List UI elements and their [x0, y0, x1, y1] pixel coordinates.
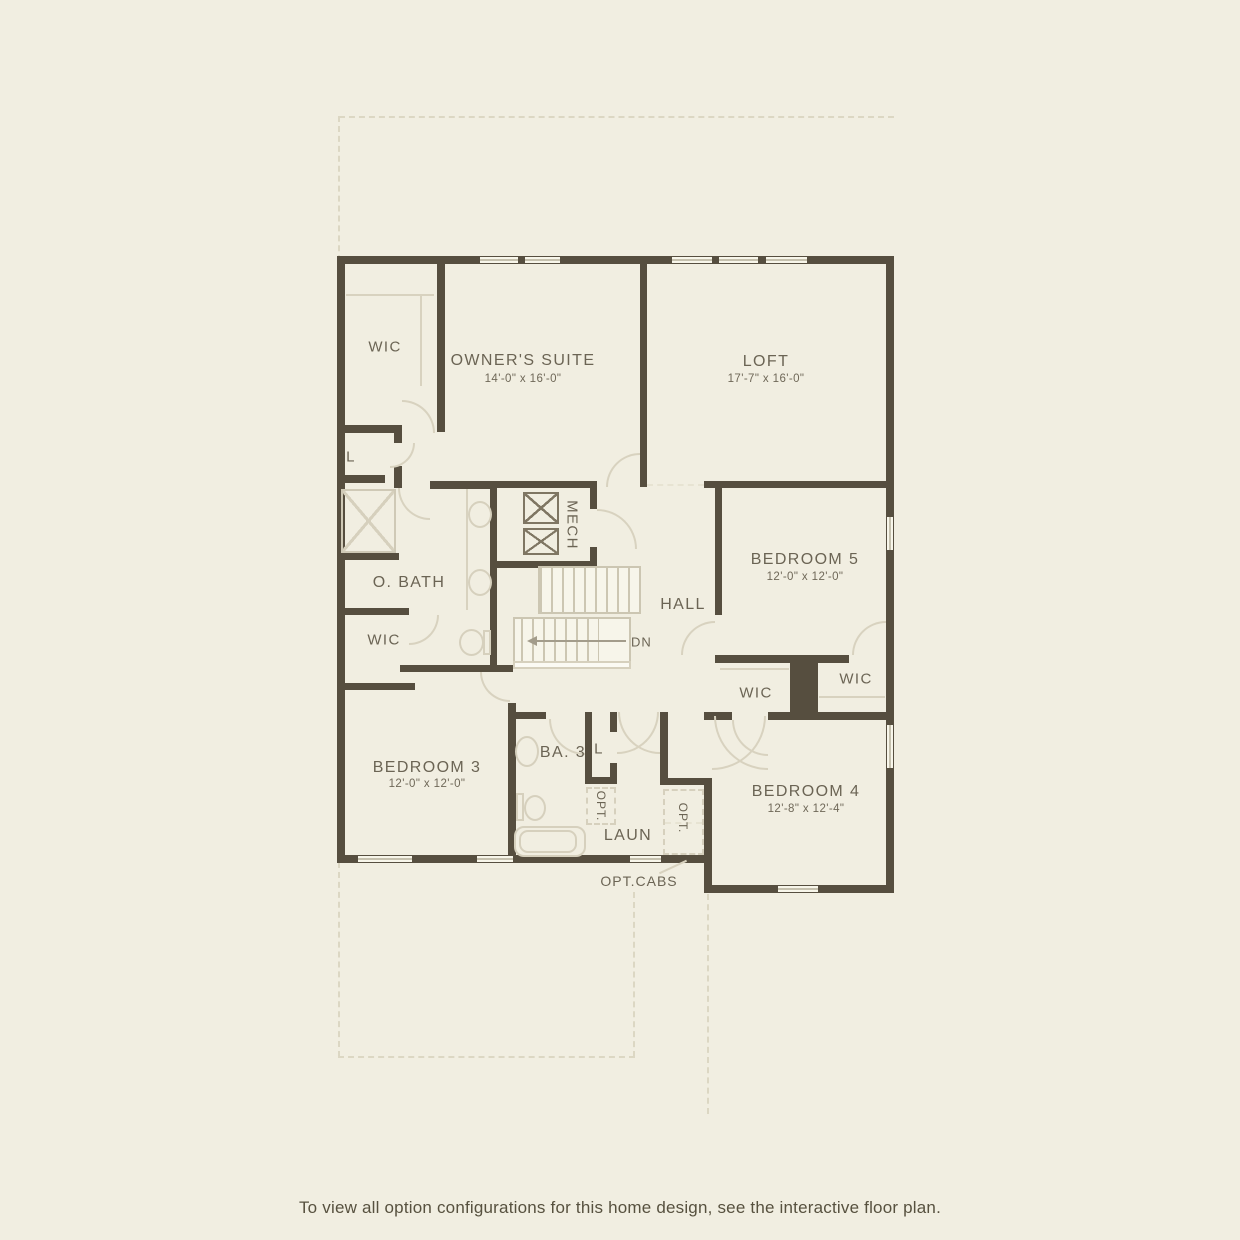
wall	[610, 712, 617, 732]
room-label-hall: HALL	[660, 596, 706, 614]
window	[887, 725, 893, 768]
wall	[394, 466, 402, 488]
bathtub-inner	[519, 830, 577, 853]
wall	[490, 481, 597, 488]
shower	[341, 489, 396, 553]
room-label-mech: MECH	[564, 500, 581, 550]
door-arc	[606, 453, 640, 487]
wall	[437, 256, 445, 432]
toilet-tank	[516, 793, 524, 821]
wall	[337, 553, 399, 560]
door-arc	[409, 615, 439, 645]
stair-landing-edge	[513, 661, 631, 669]
room-dims-bedroom4: 12'-8" x 12'-4"	[768, 803, 845, 815]
opt-cabs-opening	[630, 856, 661, 862]
window	[719, 257, 758, 263]
mech-unit	[523, 528, 559, 555]
room-label-loft: LOFT	[743, 353, 790, 371]
option-outline-bottom	[338, 1056, 635, 1058]
wall	[660, 778, 712, 785]
wall	[590, 481, 597, 509]
room-dims-loft: 17'-7" x 16'-0"	[728, 373, 805, 385]
optional-cabinets-label: OPT.CABS	[600, 873, 677, 889]
room-dims-owners-suite: 14'-0" x 16'-0"	[485, 373, 562, 385]
room-label-bedroom4: BEDROOM 4	[752, 783, 861, 801]
wall	[337, 256, 894, 264]
stair-treads	[540, 568, 639, 612]
door-arc	[480, 672, 510, 702]
wall	[660, 712, 668, 785]
window	[887, 517, 893, 550]
room-label-linen-bath: L	[594, 741, 604, 758]
floor-plan-page: WIC OWNER'S SUITE 14'-0" x 16'-0" LOFT 1…	[0, 0, 1240, 1240]
stair-down-label: DN	[631, 635, 652, 650]
closet-shelf-line	[819, 696, 885, 698]
room-label-wic-bed5-right: WIC	[839, 671, 872, 688]
room-label-wic-bed5-left: WIC	[739, 685, 772, 702]
room-dims-bedroom5: 12'-0" x 12'-0"	[767, 571, 844, 583]
vanity-counter	[466, 489, 468, 610]
room-label-owners-suite: OWNER'S SUITE	[451, 352, 596, 370]
cased-opening	[647, 484, 704, 486]
wall	[790, 655, 818, 715]
toilet	[524, 795, 546, 821]
room-label-bedroom5: BEDROOM 5	[751, 551, 860, 569]
sink	[515, 736, 539, 767]
door-arc	[402, 400, 435, 433]
option-outline-extension	[707, 894, 709, 1114]
window	[672, 257, 712, 263]
option-outline-right	[633, 892, 635, 1057]
wall	[508, 712, 546, 719]
window	[358, 856, 412, 862]
stair-direction-line	[536, 640, 626, 642]
wall	[704, 481, 894, 488]
wall	[768, 712, 894, 720]
room-label-owners-bath: O. BATH	[373, 574, 446, 592]
door-arc	[390, 443, 415, 468]
wall	[337, 683, 415, 690]
wall	[886, 256, 894, 893]
wall	[337, 475, 385, 483]
mech-unit	[523, 492, 559, 524]
wall	[394, 425, 402, 443]
toilet-tank	[483, 630, 491, 655]
room-label-linen-upper: L	[346, 449, 356, 466]
closet-shelf-line	[720, 668, 789, 670]
closet-shelf-line	[420, 294, 422, 386]
option-outline-top	[339, 116, 894, 118]
room-label-bath3: BA. 3	[540, 744, 586, 762]
optional-label-left: OPT.	[594, 791, 608, 822]
room-label-bedroom3: BEDROOM 3	[373, 759, 482, 777]
wall	[585, 777, 617, 784]
stair-flight-upper	[538, 566, 641, 614]
sink	[468, 569, 492, 596]
sink	[468, 501, 492, 528]
wall	[715, 655, 791, 663]
wall	[715, 481, 722, 615]
stair-direction-arrow	[527, 636, 537, 646]
door-arc	[852, 621, 886, 655]
wall	[430, 481, 497, 489]
room-label-laundry: LAUN	[604, 827, 652, 845]
window	[477, 856, 513, 862]
door-arc	[398, 488, 430, 520]
wall	[590, 547, 597, 568]
wall	[704, 778, 712, 892]
wall	[337, 608, 409, 615]
window	[525, 257, 560, 263]
room-label-wic-lower: WIC	[367, 632, 400, 649]
optional-label-right: OPT.	[676, 803, 690, 834]
window	[480, 257, 518, 263]
door-arc	[597, 509, 637, 549]
wall	[640, 256, 647, 487]
window	[778, 886, 818, 892]
room-dims-bedroom3: 12'-0" x 12'-0"	[389, 778, 466, 790]
window	[766, 257, 807, 263]
wall	[817, 655, 849, 663]
room-label-wic-owner: WIC	[368, 339, 401, 356]
caption-text: To view all option configurations for th…	[0, 1198, 1240, 1218]
door-arc	[681, 621, 715, 655]
toilet	[459, 629, 484, 656]
wall	[337, 425, 402, 433]
